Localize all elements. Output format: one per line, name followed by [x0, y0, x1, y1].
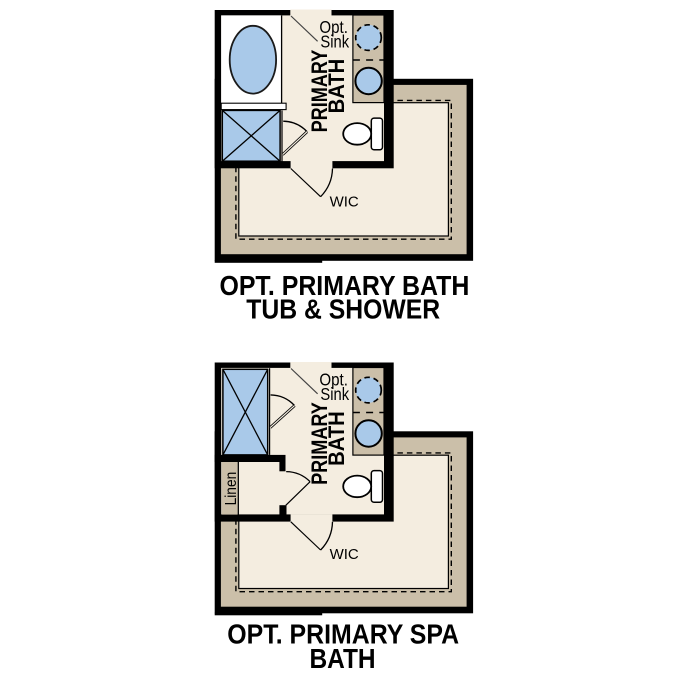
- svg-text:BATH: BATH: [325, 411, 349, 466]
- svg-text:BATH: BATH: [325, 59, 349, 114]
- svg-text:Sink: Sink: [320, 32, 349, 52]
- svg-text:TUB & SHOWER: TUB & SHOWER: [246, 293, 440, 325]
- svg-text:WIC: WIC: [330, 546, 359, 563]
- svg-text:Linen: Linen: [222, 472, 240, 506]
- svg-text:Sink: Sink: [320, 385, 349, 405]
- svg-text:WIC: WIC: [330, 193, 359, 210]
- svg-text:BATH: BATH: [309, 642, 375, 674]
